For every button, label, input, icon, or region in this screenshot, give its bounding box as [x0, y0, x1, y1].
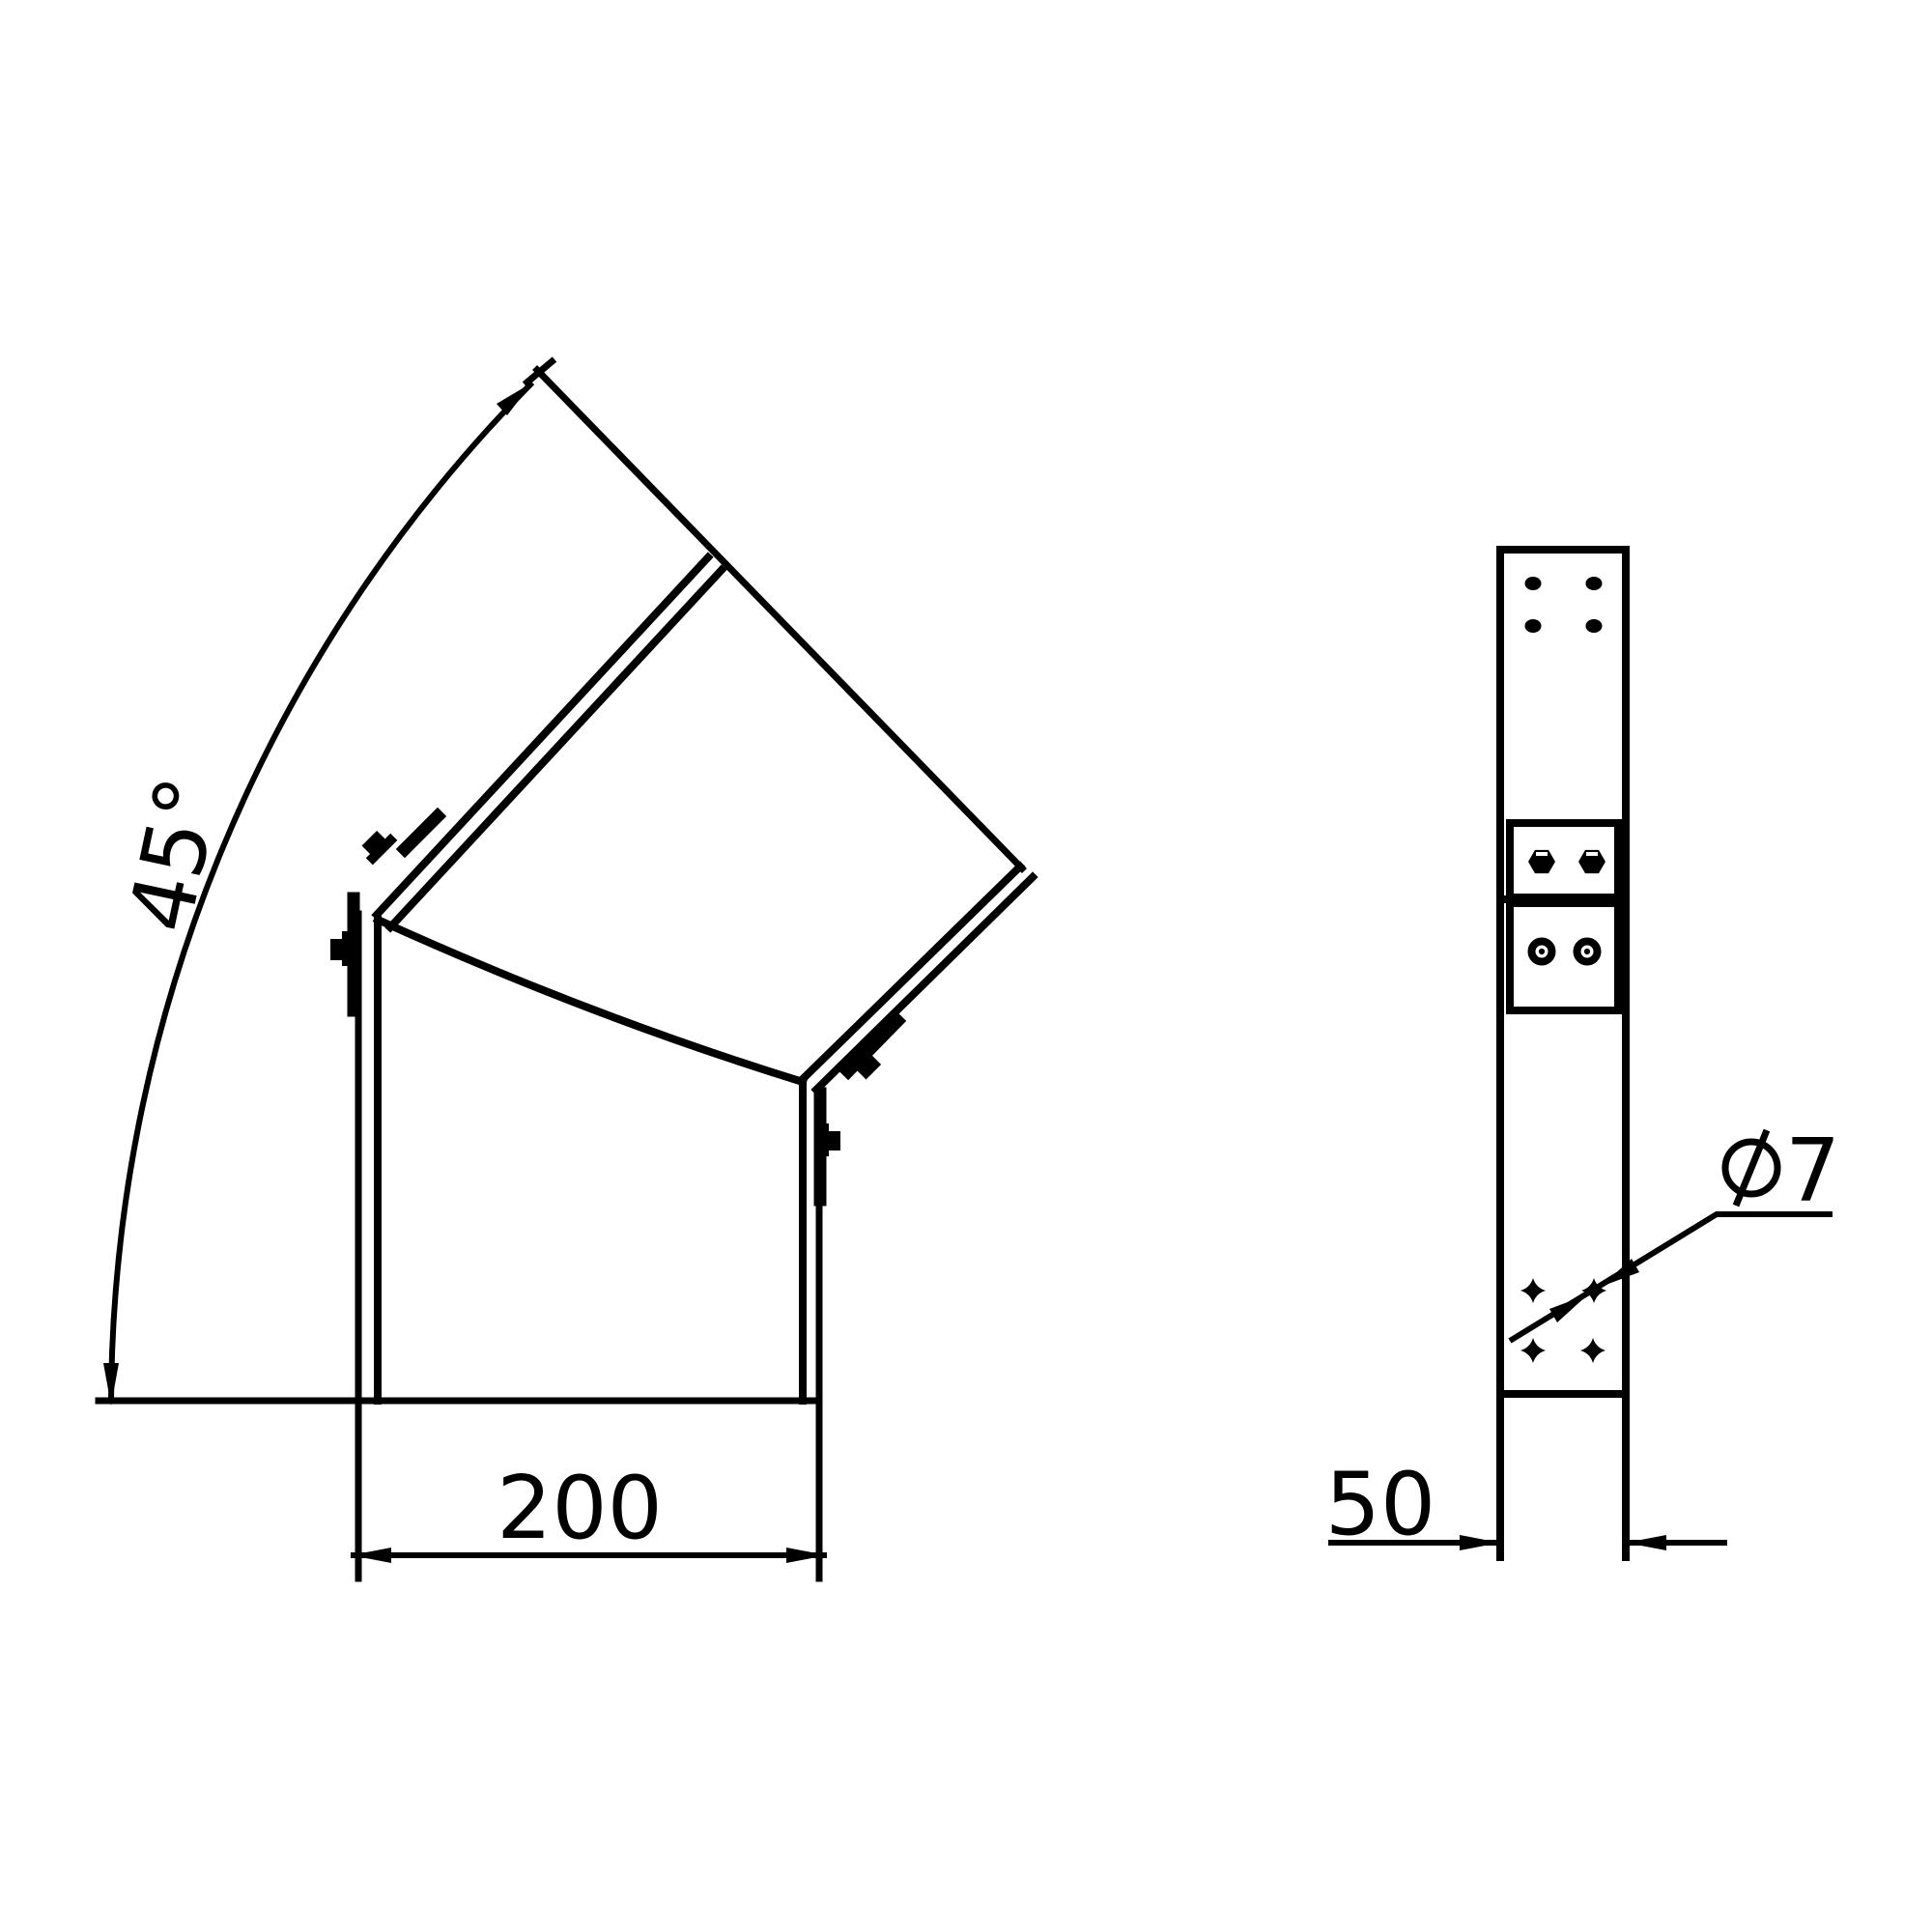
- hex-bolt-1: [1528, 850, 1555, 873]
- hole-top-1: [1525, 577, 1542, 590]
- depth-arrow-left: [1460, 1535, 1500, 1550]
- incline-right-end-outer-edge: [803, 867, 1020, 1079]
- angle-dimension-label: 45°: [109, 769, 241, 941]
- clamp-plate-lower: [1510, 903, 1618, 1010]
- bolt-upper-right-edge: [845, 1042, 886, 1083]
- round-bolt-1: [1528, 938, 1555, 965]
- hole-callout: 7: [1510, 1121, 1840, 1341]
- depth-dimension: 50: [1325, 1454, 1727, 1555]
- depth-dimension-label: 50: [1325, 1454, 1436, 1555]
- hole-d7-4: [1580, 1338, 1605, 1363]
- incline-top-edge-with-extension: [537, 370, 1022, 868]
- hex-bolts: [1528, 850, 1605, 873]
- depth-arrow-right: [1626, 1535, 1666, 1550]
- top-mounting-holes: [1525, 577, 1603, 633]
- hole-leader-arrow-upper: [1601, 1259, 1639, 1287]
- round-bolts: [1528, 938, 1601, 965]
- round-bolt-2: [1574, 938, 1601, 965]
- pictorial-view: [99, 370, 1033, 1578]
- hole-leader-line: [1510, 1214, 1833, 1341]
- bend-joint-line: [378, 920, 803, 1082]
- hole-d7-1: [1520, 1278, 1546, 1303]
- width-dimension-label: 200: [497, 1458, 663, 1559]
- drawing-sheet: 45° 200: [0, 0, 1932, 1932]
- incline-left-outer-edge: [377, 557, 708, 915]
- angle-dimension: 45°: [103, 359, 554, 1406]
- hole-d7-3: [1520, 1338, 1546, 1363]
- incline-right-end-inner-edge: [816, 877, 1033, 1090]
- cad-drawing-canvas: 45° 200: [0, 0, 1932, 1932]
- bolt-upper-left-edge: [357, 825, 397, 865]
- bolt-right-edge: [820, 1123, 840, 1156]
- diameter-symbol-icon: [1725, 1130, 1777, 1206]
- incline-left-inner-edge: [390, 570, 722, 927]
- profile-view: [1500, 550, 1626, 1557]
- hole-leader-arrow-lower: [1549, 1294, 1588, 1322]
- hole-diameter-label: 7: [1785, 1121, 1840, 1222]
- hole-top-2: [1586, 577, 1603, 590]
- hole-top-4: [1586, 619, 1603, 633]
- clamp-strap-upper-left: [405, 816, 438, 849]
- hole-top-3: [1525, 619, 1542, 633]
- width-dimension: 200: [351, 1458, 827, 1563]
- bolt-left-edge: [330, 931, 352, 966]
- hex-bolt-2: [1578, 850, 1605, 873]
